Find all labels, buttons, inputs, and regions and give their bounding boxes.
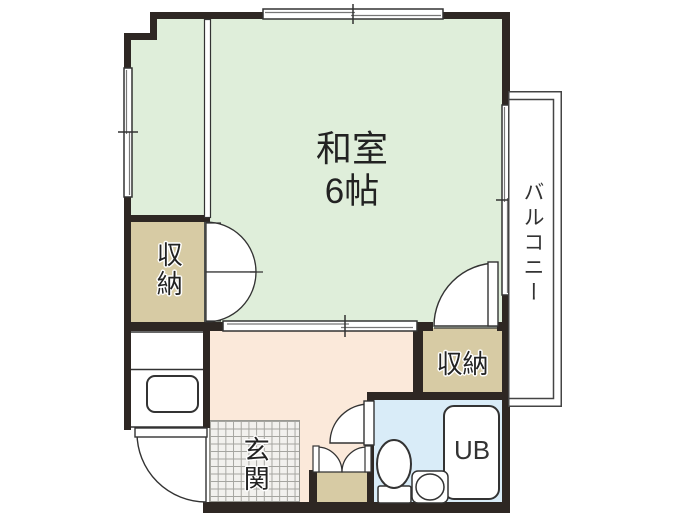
shoe-cabinet [317, 472, 367, 503]
entrance-door [135, 428, 207, 502]
wall-ub-left [367, 400, 374, 513]
closet-left-label: 収納 [154, 241, 181, 299]
room-hall-mid [210, 392, 367, 420]
wall-right [502, 12, 510, 513]
room-washitsu-west-strip [131, 40, 205, 222]
wall-bottom [203, 502, 510, 513]
wall-top [150, 12, 510, 19]
genkan-label: 玄関 [241, 436, 268, 494]
kitchen-nook [131, 331, 203, 428]
unit-bath-label: UB [444, 437, 500, 464]
closet-right-label: 収納 [423, 351, 502, 378]
wall-closet-left-top [124, 215, 210, 222]
wall-left [124, 33, 131, 430]
room-washitsu [157, 19, 502, 322]
balcony-label: バルコニー [521, 181, 543, 306]
wall-washitsu-bottom [124, 322, 433, 331]
wall-shoe-cabinet-left [309, 470, 317, 503]
room-hall-upper [210, 331, 415, 392]
wall-washitsu-bottom-right [497, 322, 510, 331]
washitsu-label: 和室 [292, 130, 412, 168]
wall-ub-top [367, 392, 510, 400]
washitsu-size-label: 6帖 [292, 174, 412, 211]
wall-closet-right-left [413, 331, 423, 392]
wall-kitchen-right [203, 331, 210, 428]
floor-plan: 和室 6帖 収納 収納 玄関 バルコニー UB [0, 0, 700, 525]
